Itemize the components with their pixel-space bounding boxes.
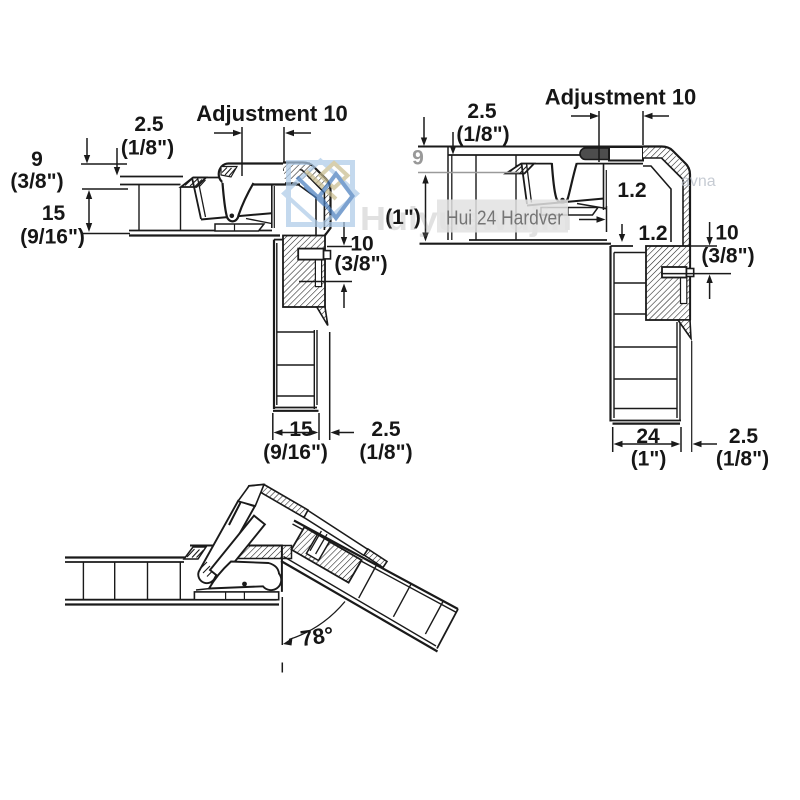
svg-text:2.5: 2.5 — [467, 100, 497, 123]
svg-text:Adjustment 10: Adjustment 10 — [196, 101, 348, 126]
svg-text:2.5: 2.5 — [134, 113, 164, 136]
svg-text:(1/8"): (1/8") — [359, 441, 412, 464]
svg-text:(1"): (1") — [631, 448, 667, 471]
svg-text:(1/8"): (1/8") — [121, 137, 174, 160]
svg-text:avna: avna — [681, 173, 716, 190]
svg-text:10: 10 — [715, 222, 738, 245]
svg-text:1.2: 1.2 — [638, 222, 667, 245]
svg-text:(3/8"): (3/8") — [334, 253, 387, 276]
svg-text:(1/8"): (1/8") — [716, 448, 769, 471]
svg-text:Hui 24 Hardver: Hui 24 Hardver — [446, 208, 563, 230]
svg-text:78°: 78° — [299, 622, 335, 651]
svg-text:9: 9 — [412, 147, 424, 170]
svg-text:(3/8"): (3/8") — [701, 245, 754, 268]
svg-text:(9/16"): (9/16") — [20, 226, 85, 249]
svg-text:(1/8"): (1/8") — [456, 123, 509, 146]
svg-text:Adjustment 10: Adjustment 10 — [545, 85, 697, 110]
svg-text:15: 15 — [42, 202, 66, 225]
svg-text:2.5: 2.5 — [729, 425, 759, 448]
svg-text:1.2: 1.2 — [617, 179, 646, 202]
svg-text:9: 9 — [31, 148, 43, 171]
svg-text:2.5: 2.5 — [371, 418, 401, 441]
svg-text:(9/16"): (9/16") — [263, 441, 328, 464]
svg-text:(3/8"): (3/8") — [10, 170, 63, 193]
